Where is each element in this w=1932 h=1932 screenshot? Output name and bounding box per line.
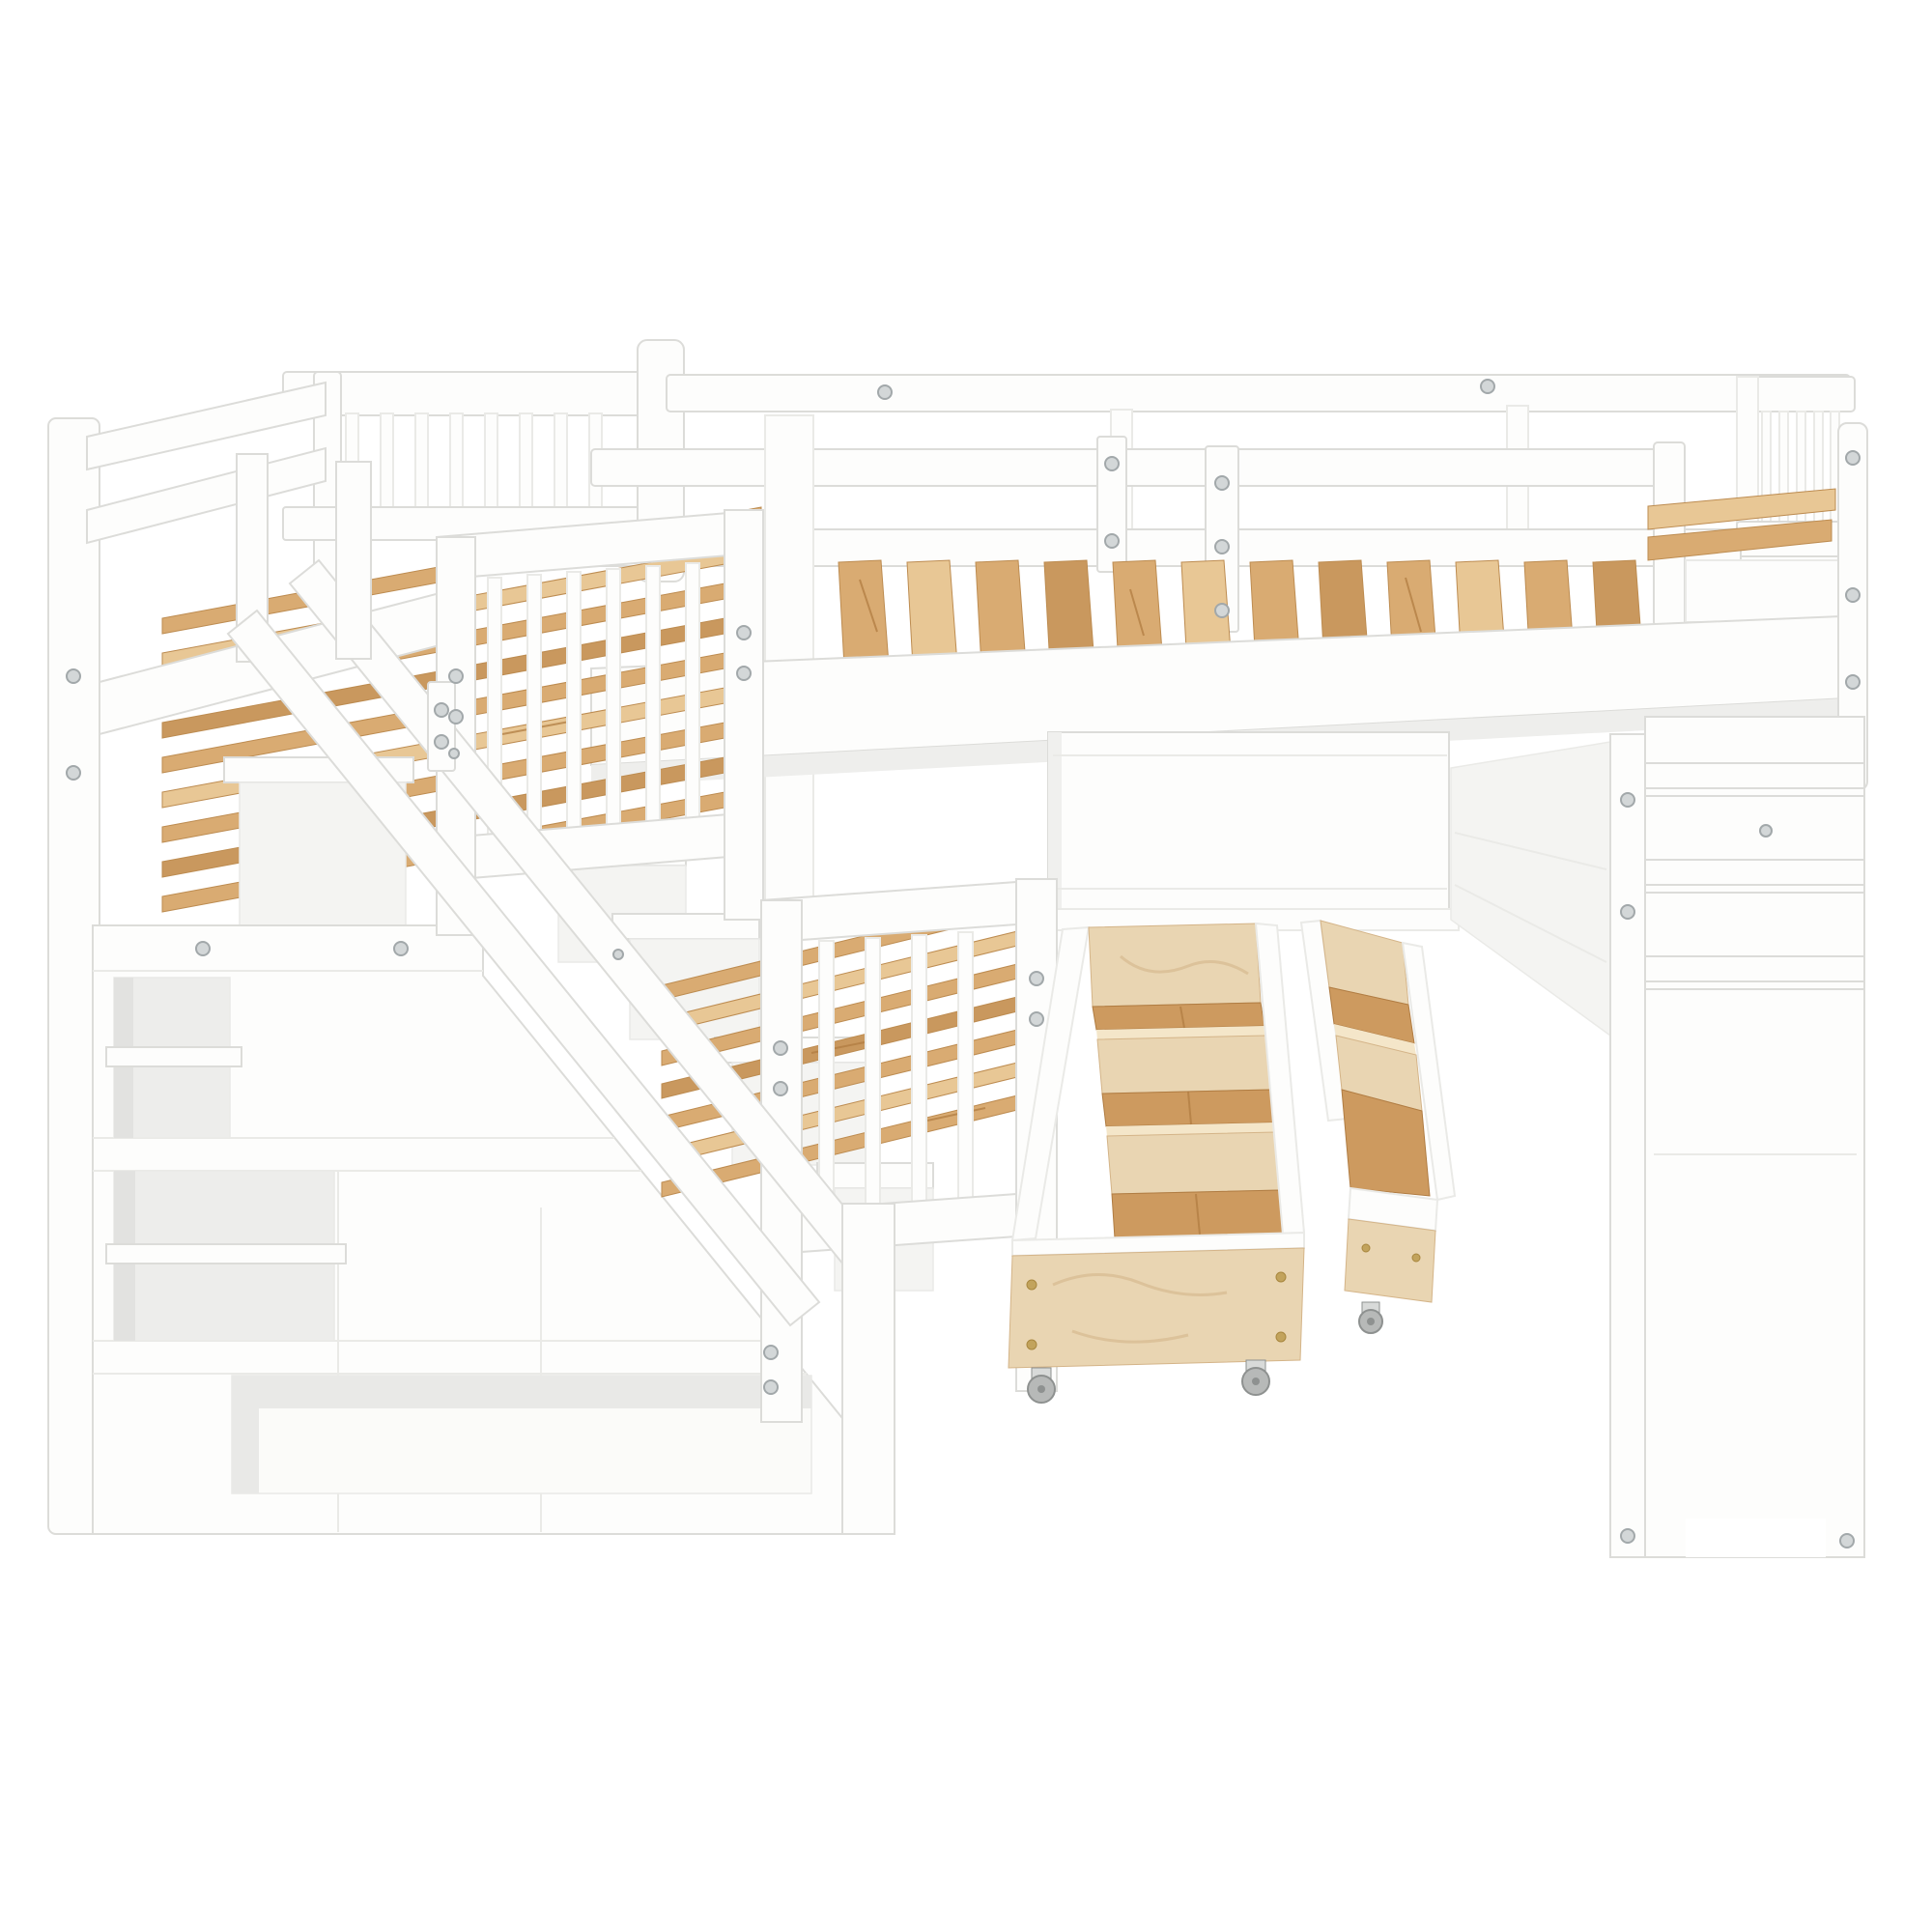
handrail-top-post xyxy=(336,462,371,659)
bunk-bed-illustration: Upper twin bed over staircase with spind… xyxy=(0,0,1932,1932)
loft-back-rail xyxy=(667,375,1850,412)
drawer-front xyxy=(1009,1248,1304,1368)
left-guardrail-top xyxy=(87,383,326,469)
drawer-right xyxy=(1301,921,1455,1333)
product-photo: Upper twin bed over staircase with spind… xyxy=(0,0,1932,1932)
tower-shelf-rung xyxy=(1645,956,1864,981)
tower-front-panel xyxy=(1645,717,1864,1557)
handrail-newel xyxy=(842,1204,895,1534)
shelf-tower: Side shelf tower with three shelf rungs … xyxy=(1451,717,1864,1557)
stair-open-shelf xyxy=(106,1171,346,1341)
tower-side-panel xyxy=(1451,742,1610,1036)
footboard-stile xyxy=(724,510,763,920)
stair-open-shelf xyxy=(106,978,241,1138)
privacy-panel: Under-loft privacy panel xyxy=(1041,732,1459,930)
caster-wheel xyxy=(1028,1368,1055,1403)
caster-wheel xyxy=(1359,1302,1382,1333)
storage-drawers: Two pulled-out plywood storage drawers w… xyxy=(1009,921,1455,1403)
tower-front-stile xyxy=(1610,734,1645,1557)
tower-feet-cutout xyxy=(1686,1519,1826,1557)
stair-bottom-cubby xyxy=(232,1376,811,1493)
twin-headboard-spindles xyxy=(346,413,602,510)
drawer-front xyxy=(1345,1219,1435,1302)
tower-shelf-rung xyxy=(1645,860,1864,885)
tower-shelf-rung xyxy=(1645,763,1864,788)
front-guardrail-top xyxy=(591,449,1683,486)
caster-wheel xyxy=(1242,1360,1269,1395)
